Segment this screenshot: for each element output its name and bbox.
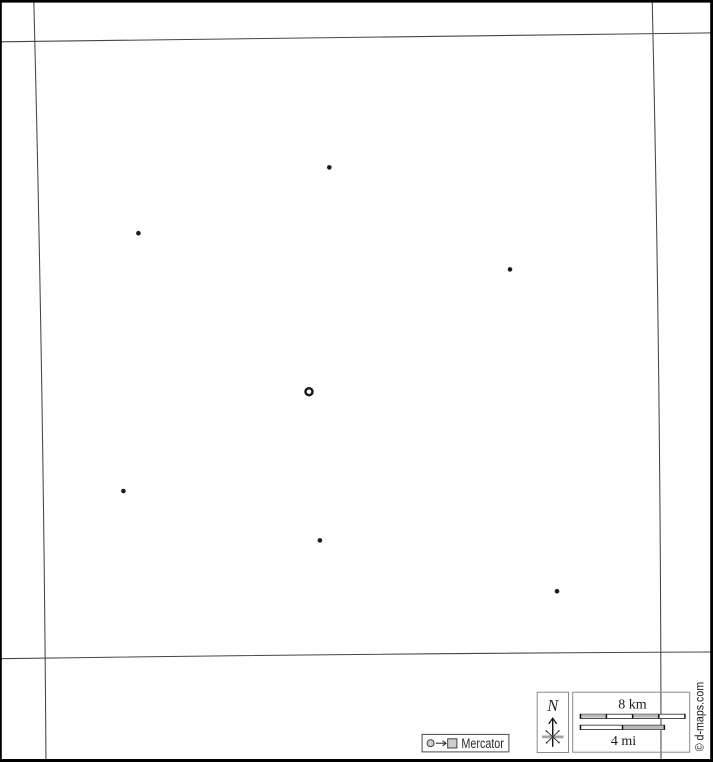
svg-text:N: N [546,696,559,715]
svg-text:4 mi: 4 mi [611,734,636,749]
svg-text:Mercator: Mercator [461,736,504,751]
svg-text:8 km: 8 km [618,698,647,713]
svg-text:© d-maps.com: © d-maps.com [694,682,706,752]
